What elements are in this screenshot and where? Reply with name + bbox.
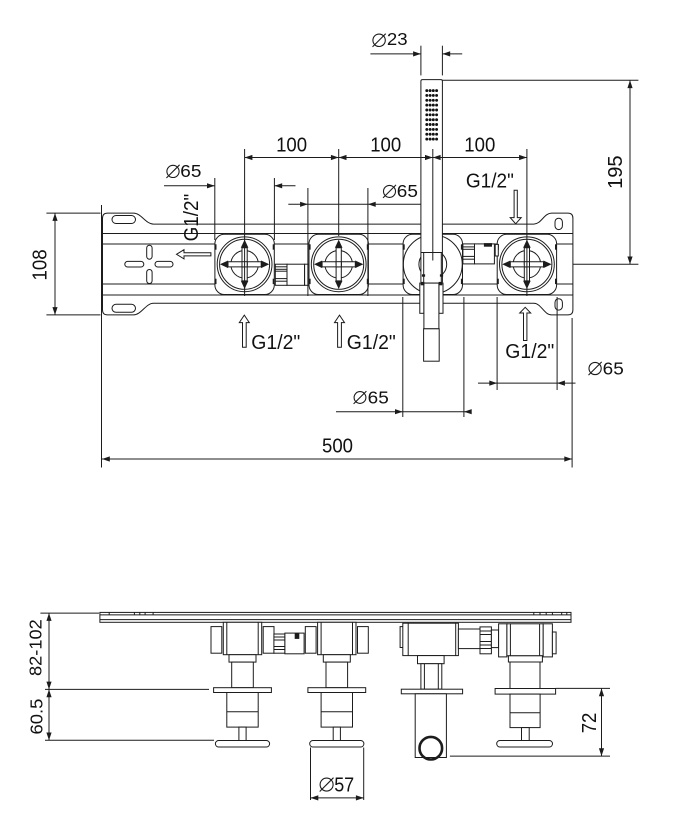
svg-text:57: 57 [334, 774, 354, 796]
svg-text:23: 23 [387, 29, 408, 49]
svg-text:65: 65 [397, 181, 418, 201]
svg-text:100: 100 [370, 135, 401, 157]
svg-text:60.5: 60.5 [26, 699, 46, 735]
svg-text:G1/2": G1/2" [347, 332, 396, 354]
svg-text:G1/2": G1/2" [181, 194, 203, 242]
svg-text:72: 72 [579, 713, 601, 734]
svg-text:82-102: 82-102 [25, 619, 45, 676]
svg-text:100: 100 [276, 135, 307, 157]
svg-text:65: 65 [368, 388, 389, 408]
svg-text:G1/2": G1/2" [251, 332, 300, 354]
svg-text:100: 100 [464, 135, 495, 157]
svg-text:500: 500 [322, 435, 353, 457]
svg-text:65: 65 [603, 359, 624, 379]
svg-text:195: 195 [605, 155, 627, 189]
svg-text:G1/2": G1/2" [466, 170, 514, 192]
svg-text:108: 108 [30, 249, 52, 280]
svg-text:65: 65 [180, 161, 201, 181]
svg-text:G1/2": G1/2" [505, 341, 554, 363]
